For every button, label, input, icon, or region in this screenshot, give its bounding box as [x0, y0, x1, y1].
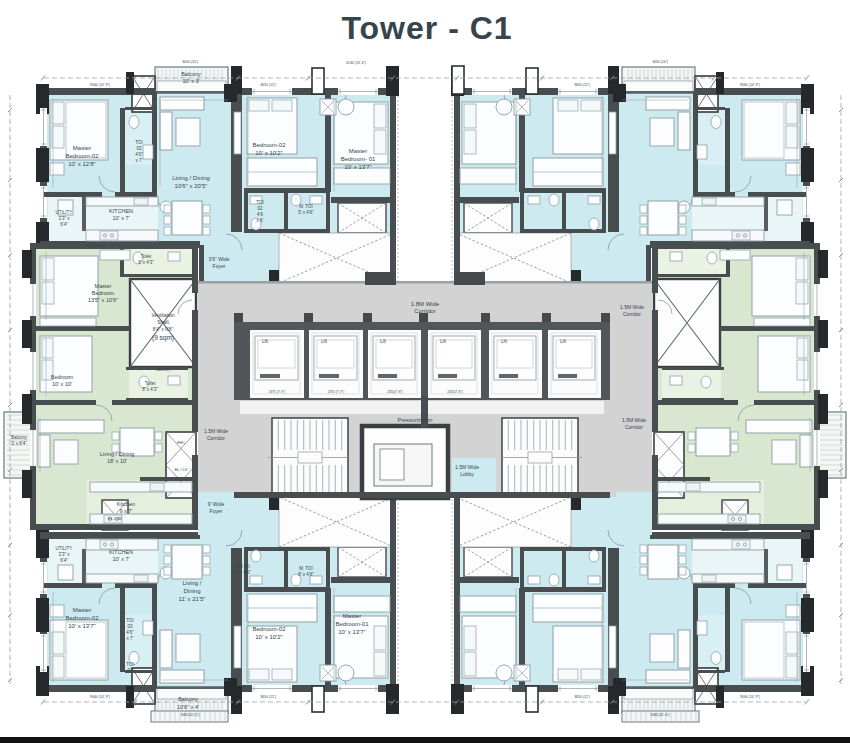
- svg-text:2375 (7'-9"): 2375 (7'-9"): [269, 390, 285, 394]
- svg-text:Master: Master: [343, 613, 361, 619]
- svg-text:x 6': x 6': [257, 218, 264, 223]
- svg-text:Lift: Lift: [321, 339, 328, 344]
- svg-text:11' x 21'5": 11' x 21'5": [179, 596, 206, 602]
- svg-text:10'6" x 20'5": 10'6" x 20'5": [175, 183, 208, 189]
- svg-text:4'6": 4'6": [126, 630, 134, 635]
- svg-text:1.5M Wide: 1.5M Wide: [204, 428, 228, 434]
- svg-text:9060 (14'-9"): 9060 (14'-9"): [90, 695, 110, 699]
- svg-text:3650 (12'): 3650 (12'): [260, 83, 276, 87]
- svg-text:TOI: TOI: [126, 662, 133, 667]
- svg-text:10' x 10'2": 10' x 10'2": [255, 634, 282, 640]
- svg-text:3065(10'-0"): 3065(10'-0"): [180, 713, 199, 717]
- svg-text:8' x 4'6": 8' x 4'6": [298, 572, 314, 577]
- svg-text:03: 03: [136, 146, 142, 151]
- svg-text:Corridor: Corridor: [414, 308, 436, 314]
- svg-text:Bedroom-02: Bedroom-02: [252, 626, 286, 632]
- svg-text:9060 (14'-9"): 9060 (14'-9"): [90, 83, 110, 87]
- svg-text:Lift: Lift: [440, 339, 447, 344]
- svg-text:Tower - C1: Tower - C1: [341, 10, 512, 46]
- svg-text:TOI: TOI: [126, 618, 133, 623]
- svg-text:Living / Dining: Living / Dining: [100, 451, 135, 457]
- svg-text:5' x 4'6": 5' x 4'6": [298, 210, 314, 215]
- svg-text:Shaft: Shaft: [157, 319, 169, 325]
- svg-text:4130 (13'-6"): 4130 (13'-6"): [85, 527, 105, 531]
- svg-text:Kitchen: Kitchen: [117, 501, 135, 507]
- svg-text:9 x 7': 9 x 7': [120, 508, 133, 514]
- svg-text:Bedroom-01: Bedroom-01: [335, 621, 369, 627]
- svg-text:8' x 4'3": 8' x 4'3": [138, 260, 154, 265]
- svg-text:2400 (8'): 2400 (8'): [156, 368, 170, 372]
- svg-text:2350(7'-8"): 2350(7'-8"): [447, 390, 463, 394]
- svg-text:3' x 8'4": 3' x 8'4": [11, 441, 27, 446]
- svg-text:Bedroom-02: Bedroom-02: [65, 153, 99, 159]
- svg-text:3050 (10'): 3050 (10'): [652, 60, 668, 64]
- svg-text:Lift: Lift: [380, 339, 387, 344]
- svg-text:3'3" x: 3'3" x: [59, 216, 71, 221]
- svg-text:Balcony: Balcony: [181, 71, 201, 77]
- svg-text:1.5M Wide: 1.5M Wide: [620, 304, 644, 310]
- svg-text:10' x 3': 10' x 3': [182, 78, 199, 84]
- svg-text:7' x 4'6": 7' x 4'6": [235, 570, 251, 575]
- svg-text:Bedroom: Bedroom: [92, 290, 115, 296]
- svg-text:Master: Master: [73, 145, 91, 151]
- svg-text:Master: Master: [73, 607, 91, 613]
- svg-text:3650 (12'): 3650 (12'): [574, 695, 590, 699]
- svg-text:4'6: 4'6: [257, 212, 263, 217]
- svg-text:18' x 10': 18' x 10': [107, 458, 127, 464]
- svg-text:02: 02: [257, 206, 263, 211]
- svg-text:M. TOI: M. TOI: [299, 204, 313, 209]
- svg-text:Master: Master: [95, 283, 112, 289]
- svg-text:Corridor: Corridor: [625, 424, 643, 430]
- svg-text:Living /: Living /: [182, 580, 201, 586]
- svg-text:9060 (14'-9"): 9060 (14'-9"): [740, 83, 760, 87]
- svg-text:3'6" Wide: 3'6" Wide: [208, 256, 229, 262]
- svg-text:6'4": 6'4": [60, 222, 68, 227]
- svg-text:Foyer: Foyer: [210, 508, 223, 514]
- svg-text:1.8M Wide: 1.8M Wide: [411, 301, 440, 307]
- svg-text:10' x 13'7": 10' x 13'7": [338, 629, 365, 635]
- svg-text:Living / Dining: Living / Dining: [172, 175, 210, 181]
- svg-text:10' x 10': 10' x 10': [52, 381, 72, 387]
- svg-text:EL / LV: EL / LV: [175, 467, 188, 472]
- svg-text:10' x 7': 10' x 7': [112, 215, 129, 221]
- svg-text:Lift: Lift: [560, 339, 567, 344]
- svg-text:1.5M Wide: 1.5M Wide: [622, 417, 646, 423]
- svg-text:3050 (10'): 3050 (10'): [182, 60, 198, 64]
- svg-text:Lift: Lift: [501, 339, 508, 344]
- svg-text:Bedroom-02: Bedroom-02: [65, 615, 99, 621]
- svg-text:Pressurization: Pressurization: [398, 417, 433, 423]
- svg-text:4130 (13'-6"): 4130 (13'-6"): [85, 244, 105, 248]
- svg-text:3650 (12'): 3650 (12'): [260, 695, 276, 699]
- svg-text:10' x 13'7": 10' x 13'7": [68, 623, 95, 629]
- svg-text:Dining: Dining: [183, 588, 200, 594]
- svg-text:4'6": 4'6": [135, 152, 143, 157]
- svg-text:x 7': x 7': [136, 158, 143, 163]
- svg-text:TOI: TOI: [256, 200, 263, 205]
- svg-text:Toilet: Toilet: [141, 254, 152, 259]
- svg-text:Corridor: Corridor: [207, 435, 225, 441]
- svg-text:Bedroom-02: Bedroom-02: [252, 142, 286, 148]
- svg-text:TOI: TOI: [135, 140, 142, 145]
- svg-text:13'5" x 10'6": 13'5" x 10'6": [88, 297, 118, 303]
- svg-text:03: 03: [127, 624, 133, 629]
- svg-text:Bedroom: Bedroom: [51, 374, 74, 380]
- svg-text:10' x 13'7": 10' x 13'7": [344, 164, 371, 170]
- svg-text:Toilet: Toilet: [145, 381, 156, 386]
- svg-text:10' x 7': 10' x 7': [112, 556, 129, 562]
- svg-text:9' Wide: 9' Wide: [208, 501, 225, 507]
- svg-text:1.5M Wide: 1.5M Wide: [455, 464, 479, 470]
- svg-text:Master: Master: [349, 148, 367, 154]
- svg-text:Lobby: Lobby: [460, 471, 474, 477]
- svg-text:Lift: Lift: [262, 339, 269, 344]
- svg-text:3'3" x: 3'3" x: [59, 552, 71, 557]
- svg-text:(9 sqm): (9 sqm): [152, 334, 174, 342]
- svg-text:Balcony: Balcony: [178, 696, 198, 702]
- svg-text:2350(7'-8"): 2350(7'-8"): [387, 390, 403, 394]
- svg-text:Corridor: Corridor: [623, 311, 641, 317]
- svg-text:UTILITY: UTILITY: [56, 210, 73, 215]
- svg-text:6'4": 6'4": [60, 558, 68, 563]
- svg-text:KITCHEN: KITCHEN: [109, 549, 133, 555]
- svg-text:KITCHEN: KITCHEN: [109, 208, 133, 214]
- svg-text:TOI 02-: TOI 02-: [235, 564, 251, 569]
- svg-text:4130 (13'-6"): 4130 (13'-6"): [346, 61, 366, 65]
- svg-text:M. TOI: M. TOI: [299, 566, 313, 571]
- svg-text:9060 (14'-9"): 9060 (14'-9"): [740, 695, 760, 699]
- svg-text:8'4" x N'8": 8'4" x N'8": [153, 327, 174, 332]
- svg-text:EL / LW: EL / LW: [108, 516, 122, 521]
- svg-text:FHC: FHC: [177, 440, 185, 445]
- svg-text:3065(10'-0"): 3065(10'-0"): [650, 713, 669, 717]
- svg-text:2375 (7'-9"): 2375 (7'-9"): [328, 390, 344, 394]
- svg-text:8' x 4'3": 8' x 4'3": [142, 387, 158, 392]
- svg-text:3650 (12'): 3650 (12'): [574, 83, 590, 87]
- svg-text:Bedroom- 01: Bedroom- 01: [341, 156, 376, 162]
- svg-text:10' x 10'2": 10' x 10'2": [255, 150, 282, 156]
- svg-text:UTILITY: UTILITY: [56, 546, 73, 551]
- svg-text:03: 03: [127, 668, 133, 673]
- svg-text:10'6" x 4': 10'6" x 4': [177, 704, 199, 710]
- svg-text:x 7': x 7': [127, 636, 134, 641]
- svg-text:Ventilation: Ventilation: [151, 312, 174, 318]
- svg-text:10' x 12'8": 10' x 12'8": [68, 161, 95, 167]
- svg-text:Balcony: Balcony: [11, 435, 28, 440]
- svg-text:Foyer: Foyer: [213, 263, 226, 269]
